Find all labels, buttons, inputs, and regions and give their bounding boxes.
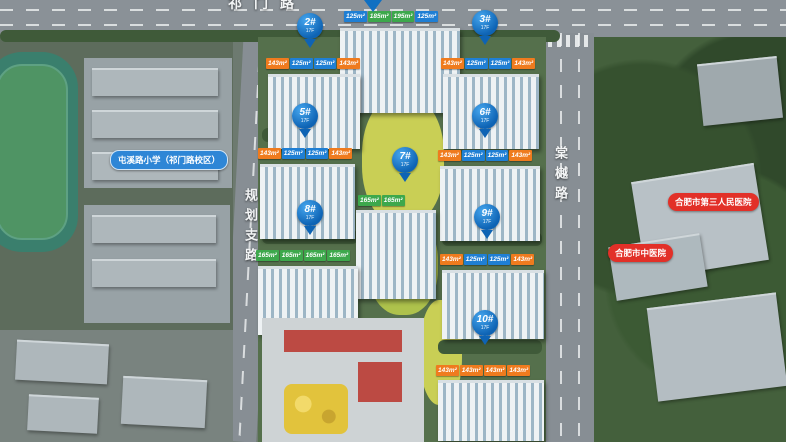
pin-tip: [304, 226, 316, 235]
lane-marking: [578, 33, 580, 442]
map-pin-3[interactable]: 3#17F: [472, 10, 498, 45]
pin-tip: [299, 129, 311, 138]
map-pin-6[interactable]: 6#17F: [472, 103, 498, 138]
map-pin-7[interactable]: 7#17F: [392, 147, 418, 182]
area-tag: 143m²: [436, 365, 459, 376]
pin-number: 9#: [481, 209, 492, 219]
pin-floors: 17F: [483, 220, 492, 225]
area-tag: 143m²: [441, 58, 464, 69]
area-tag: 165m²: [304, 250, 327, 261]
pin-number: 10#: [477, 315, 494, 325]
map-pin-1-partial[interactable]: [364, 0, 382, 12]
area-tag: 143m²: [258, 148, 281, 159]
pin-tip: [479, 129, 491, 138]
pin-floors: 17F: [481, 119, 490, 124]
tower-7: [356, 210, 436, 299]
pin-number: 2#: [304, 18, 315, 28]
area-tag: 143m²: [507, 365, 530, 376]
school-building: [92, 68, 218, 96]
area-tag: 125m²: [488, 254, 511, 265]
kindergarten-roof: [358, 362, 402, 402]
area-tag: 165m²: [382, 195, 405, 206]
pin-tip: [399, 173, 411, 182]
building: [697, 56, 783, 126]
tower-10: [438, 380, 544, 441]
tags-building-2: 143m² 125m² 125m² 143m²: [266, 58, 360, 69]
pin-number: 3#: [479, 15, 490, 25]
area-tag: 125m²: [464, 254, 487, 265]
area-tag: 143m²: [438, 150, 461, 161]
pin-floors: 17F: [481, 26, 490, 31]
road-label-top: 祁门路: [228, 0, 306, 13]
sports-field: [0, 64, 68, 240]
area-tag: 125m²: [282, 148, 305, 159]
pin-tip: [304, 39, 316, 48]
area-tag: 143m²: [511, 254, 534, 265]
area-tag: 125m²: [344, 11, 367, 22]
tags-building-9: 143m² 125m² 125m² 143m²: [440, 254, 534, 265]
school-building: [92, 110, 218, 138]
hospital-building: [647, 292, 786, 401]
pin-number: 7#: [399, 152, 410, 162]
lane-marking: [560, 33, 562, 442]
campus-block: [84, 205, 230, 323]
area-tag: 143m²: [484, 365, 507, 376]
tags-building-10: 143m² 143m² 143m² 143m²: [436, 365, 530, 376]
lane-marking: [0, 24, 786, 26]
pin-tip: [479, 336, 491, 345]
aerial-masterplan-map: 祁门路 规划支路 棠樾路 屯溪路小学（祁门路校区） 合肥市第三人民医院 合肥市中…: [0, 0, 786, 442]
area-tag: 143m²: [266, 58, 289, 69]
area-tag: 143m²: [460, 365, 483, 376]
road-label-right: 棠樾路: [551, 146, 570, 206]
building: [121, 376, 207, 428]
pin-tip: [481, 230, 493, 239]
area-tag: 125m²: [306, 148, 329, 159]
map-pin-8[interactable]: 8#17F: [297, 200, 323, 235]
tags-building-8: 165m² 165m² 165m² 165m²: [256, 250, 350, 261]
area-tag: 125m²: [465, 58, 488, 69]
map-pin-9[interactable]: 9#17F: [474, 204, 500, 239]
school-building: [92, 215, 216, 243]
area-tag: 125m²: [314, 58, 337, 69]
area-tag: 125m²: [415, 11, 438, 22]
pin-tip: [479, 36, 491, 45]
tags-building-6: 143m² 125m² 125m² 143m²: [438, 150, 532, 161]
school-building: [92, 259, 216, 287]
area-tag: 165m²: [280, 250, 303, 261]
area-tag: 143m²: [509, 150, 532, 161]
pin-floors: 17F: [401, 163, 410, 168]
area-tag: 195m²: [392, 11, 415, 22]
poi-school-label: 屯溪路小学（祁门路校区）: [110, 150, 228, 170]
tags-building-3: 143m² 125m² 125m² 143m²: [441, 58, 535, 69]
kindergarten-block: [262, 318, 424, 442]
area-tag: 143m²: [440, 254, 463, 265]
map-pin-2[interactable]: 2#17F: [297, 13, 323, 48]
area-tag: 143m²: [512, 58, 535, 69]
tags-building-5: 143m² 125m² 125m² 143m²: [258, 148, 352, 159]
pin-floors: 17F: [481, 326, 490, 331]
area-tag: 125m²: [489, 58, 512, 69]
map-pin-10[interactable]: 10#17F: [472, 310, 498, 345]
poi-hospital-main-label: 合肥市第三人民医院: [668, 193, 759, 211]
tags-building-7: 165m² 165m²: [358, 195, 405, 206]
bottom-left-blocks: [0, 330, 233, 442]
kindergarten-roof: [284, 330, 402, 352]
pin-floors: 17F: [306, 216, 315, 221]
area-tag: 165m²: [256, 250, 279, 261]
building: [15, 340, 109, 385]
pin-number: 6#: [479, 108, 490, 118]
map-pin-5[interactable]: 5#17F: [292, 103, 318, 138]
pin-floors: 17F: [301, 119, 310, 124]
area-tag: 125m²: [462, 150, 485, 161]
poi-hospital-tcm-label: 合肥市中医院: [608, 244, 673, 262]
pin-floors: 17F: [306, 29, 315, 34]
area-tag: 143m²: [329, 148, 352, 159]
area-tag: 165m²: [327, 250, 350, 261]
area-tag: 185m²: [368, 11, 391, 22]
tags-building-1: 125m² 185m² 195m² 125m²: [344, 11, 438, 22]
pin-number: 8#: [304, 205, 315, 215]
area-tag: 125m²: [486, 150, 509, 161]
playground: [284, 384, 348, 434]
area-tag: 165m²: [358, 195, 381, 206]
pin-number: 5#: [299, 108, 310, 118]
sports-track: [0, 52, 78, 252]
right-road: [546, 33, 594, 442]
area-tag: 143m²: [337, 58, 360, 69]
area-tag: 125m²: [290, 58, 313, 69]
building: [27, 394, 99, 434]
